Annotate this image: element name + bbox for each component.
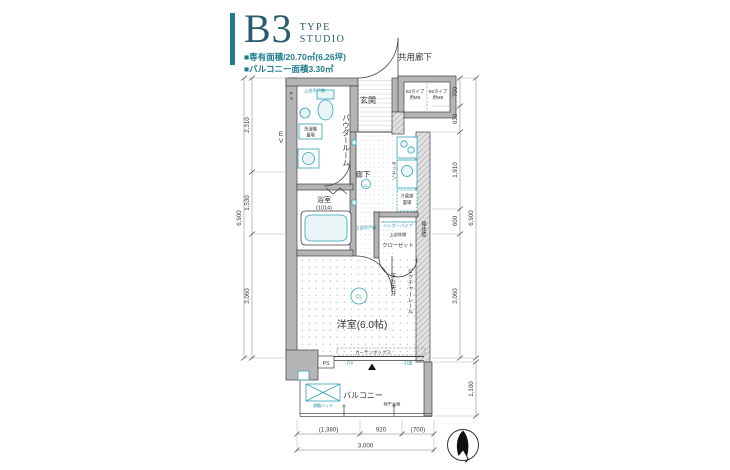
label-balcony: バルコニー (343, 391, 383, 400)
dim-balcony-depth: 1,100 (468, 381, 475, 397)
label-fridge-1: 冷蔵庫 (401, 193, 415, 200)
dim-bottom-2: 920 (376, 427, 387, 434)
label-bathroom-size: (1014) (316, 206, 332, 212)
label-structural-wall: 躯体壁 (420, 220, 426, 237)
label-hallway: 廊下 (356, 169, 371, 179)
wall-bath-room (297, 250, 353, 256)
label-western-room: 洋室(6.0帖) (337, 318, 388, 331)
label-upper-shelf: 上部枕棚 (390, 231, 407, 238)
wall-top (286, 78, 358, 86)
dim-bottom-1: (1,380) (319, 427, 339, 434)
label-window-sliding: →引違 (400, 360, 413, 367)
dim-bottom-3: (700) (411, 427, 425, 434)
label-mb-left-1: B3タイプ (406, 88, 425, 95)
label-upper-cabinet-2: 上部吊戸棚 (356, 224, 377, 231)
label-mb-right-1: B2タイプ (429, 88, 448, 95)
dim-left-2: 1,530 (244, 195, 251, 211)
dim-right-5: 3,060 (452, 288, 459, 304)
vanity-bowl (303, 153, 315, 165)
switch-box-2 (352, 200, 356, 205)
label-elevator: EV (278, 131, 285, 145)
wall-entrance-left (350, 86, 358, 132)
entrance-door-arc (358, 38, 398, 78)
dim-bottom-total: 3,000 (358, 443, 374, 450)
wall-left (286, 78, 297, 360)
label-closet: クローゼット (382, 241, 413, 249)
dim-left-1: 2,310 (244, 117, 251, 133)
label-window-fix: →FIX (343, 361, 354, 366)
dim-right-4: 600 (452, 215, 459, 226)
label-hanger-pipe: ハンガーパイプ (383, 222, 413, 229)
label-bathroom: 浴室 (317, 195, 331, 204)
label-picture-rail: ピクチャーレール (406, 268, 413, 315)
water-heater-box (298, 371, 309, 380)
wall-closet-top (374, 212, 418, 217)
dim-right-total: 6,900 (468, 210, 475, 226)
label-cl-large: CL (356, 295, 363, 301)
room-floor (297, 256, 416, 356)
label-laundry-hook: 物干金物 (384, 401, 401, 408)
label-cl-small: CL (364, 184, 368, 188)
dim-right-2: 630 (452, 113, 459, 124)
label-washer-2: 置場 (306, 132, 315, 139)
label-escape-hatch: 避難ハッチ (313, 402, 333, 408)
bathtub-inner (305, 215, 347, 241)
label-ps-bottom: PS (323, 361, 330, 367)
label-kitchen: キッチン (391, 161, 396, 181)
stove (397, 137, 417, 158)
washbasin (300, 108, 310, 118)
wall-powder-bath (297, 184, 353, 190)
label-ps-top: PS (289, 91, 294, 102)
toilet-bowl (318, 100, 333, 120)
wall-right-hatched (416, 132, 430, 362)
label-powder-room: パウダールーム (341, 114, 350, 167)
escape-hatch (298, 371, 340, 401)
wall-balcony-right (424, 362, 432, 416)
entrance-floor (358, 80, 392, 132)
dim-left-total: 6,900 (236, 210, 243, 226)
section-mark (368, 364, 376, 371)
switch-box-1 (352, 140, 356, 145)
dim-left-3: 3,060 (244, 288, 251, 304)
label-curtain-box: カーテンボックス (355, 349, 391, 356)
wall-hatch-top (392, 112, 404, 134)
label-fridge-2: 置場 (403, 199, 412, 206)
label-dropped-ceiling: 下り天井 (389, 273, 396, 298)
dim-right-3: 1,910 (452, 162, 459, 178)
floorplan-drawing: 共用廊下 玄関 B3タイプ 用MB B2タイプ 用MB PS PS 上部吊戸棚 … (235, 25, 505, 468)
label-upper-cabinet-1: 上部吊戸棚 (304, 87, 325, 94)
compass-north (448, 430, 479, 463)
dim-right-1: 700 (452, 86, 459, 97)
label-shared-corridor: 共用廊下 (398, 52, 433, 62)
label-entrance: 玄関 (360, 95, 376, 105)
label-washer-1: 洗濯機 (304, 126, 318, 133)
wall-closet-left (374, 212, 379, 258)
floorplan-page: B3 TYPE STUDIO ■専有面積/20.70㎡(6.26坪) ■バルコニ… (0, 0, 730, 470)
